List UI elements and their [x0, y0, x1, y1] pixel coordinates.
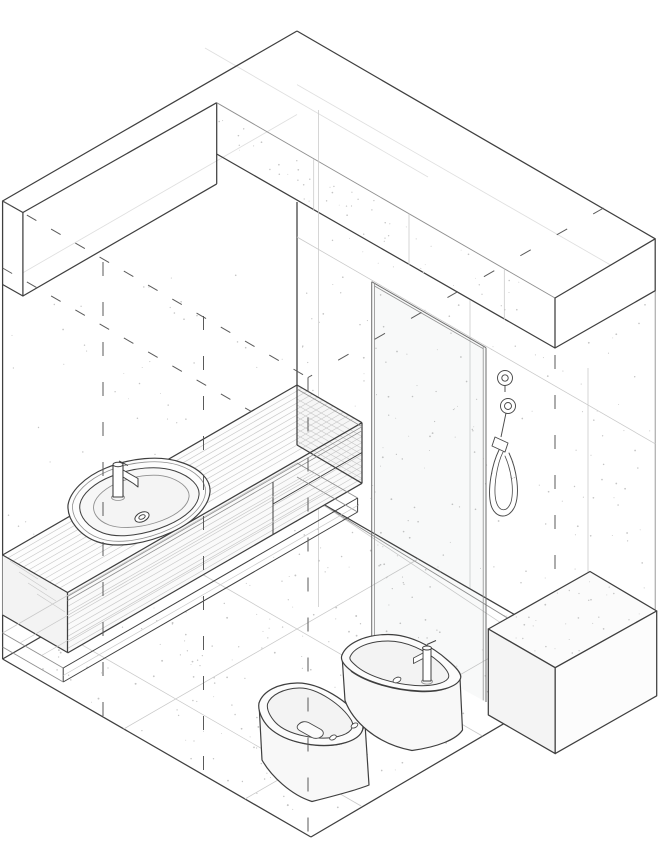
drawing-canvas	[0, 0, 669, 863]
bathroom-axonometric-view	[0, 0, 669, 863]
hand-shower-set	[490, 371, 518, 517]
ghost-lines	[3, 48, 656, 291]
bench-block	[488, 572, 656, 754]
shower-glass-door	[319, 110, 487, 702]
